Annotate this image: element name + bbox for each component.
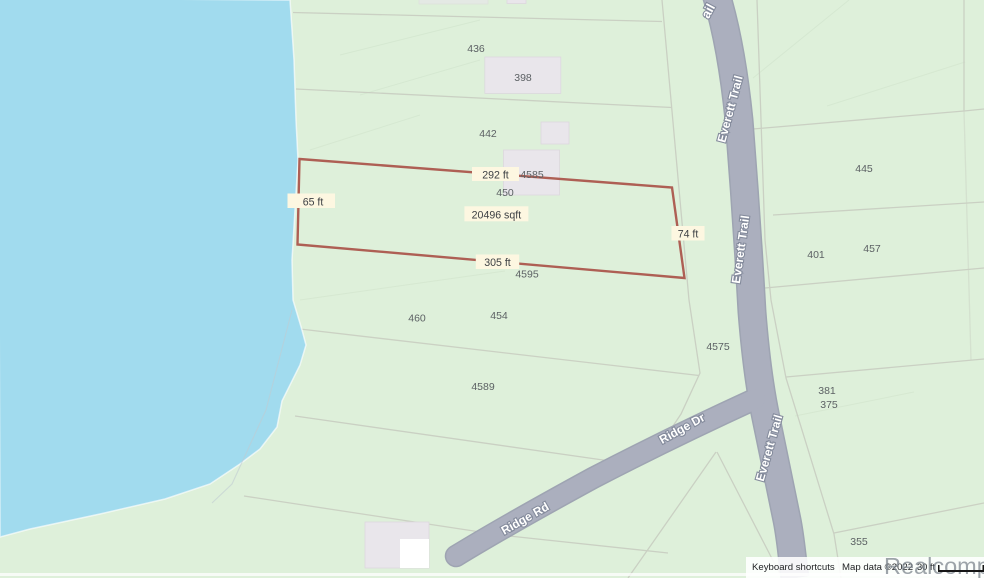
svg-text:4585: 4585 (520, 169, 544, 181)
svg-text:454: 454 (490, 310, 508, 322)
svg-text:442: 442 (479, 128, 497, 140)
svg-text:65 ft: 65 ft (303, 197, 324, 209)
svg-text:398: 398 (514, 72, 532, 84)
svg-text:305 ft: 305 ft (484, 257, 511, 269)
svg-text:Keyboard shortcuts: Keyboard shortcuts (752, 562, 835, 573)
svg-text:Realcomp: Realcomp (884, 553, 984, 578)
svg-text:4575: 4575 (706, 341, 730, 353)
svg-text:4589: 4589 (471, 381, 495, 393)
svg-text:20496 sqft: 20496 sqft (472, 209, 522, 221)
svg-text:381: 381 (818, 385, 836, 397)
svg-text:401: 401 (807, 249, 825, 261)
svg-text:450: 450 (496, 187, 514, 199)
svg-text:355: 355 (850, 536, 868, 548)
svg-text:436: 436 (467, 43, 485, 55)
svg-text:292 ft: 292 ft (482, 170, 509, 182)
svg-text:4595: 4595 (515, 269, 539, 281)
svg-text:74 ft: 74 ft (678, 229, 699, 241)
svg-text:460: 460 (408, 313, 426, 325)
svg-text:445: 445 (855, 163, 873, 175)
svg-text:375: 375 (820, 399, 838, 411)
svg-text:457: 457 (863, 243, 881, 255)
